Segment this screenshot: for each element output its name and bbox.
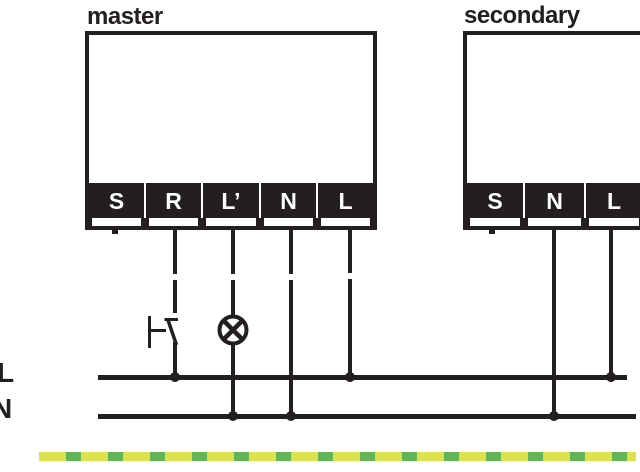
wire-master-l-lower <box>348 279 352 378</box>
master-terminal-bar: S R L’ N L <box>89 183 373 226</box>
terminal-stub-secondary-s <box>489 230 495 234</box>
wire-master-l1-upper <box>231 230 235 274</box>
terminal-slot <box>528 218 581 226</box>
master-terminal-letters: S R L’ N L <box>89 183 373 218</box>
terminal-slot <box>321 218 370 226</box>
bus-label-l: L <box>0 359 14 387</box>
earth-conductor <box>39 452 636 461</box>
master-terminal-r: R <box>146 183 201 218</box>
terminal-slot <box>264 218 313 226</box>
terminal-slot <box>92 218 141 226</box>
bus-label-n: N <box>0 395 12 423</box>
secondary-terminal-letters: S N L <box>467 183 640 218</box>
master-terminal-n: N <box>261 183 316 218</box>
secondary-device: S N L <box>463 31 640 230</box>
terminal-slot <box>470 218 520 226</box>
master-terminal-slots <box>89 218 373 226</box>
master-panel-face <box>89 35 373 183</box>
terminal-slot <box>206 218 256 226</box>
master-terminal-l1: L’ <box>203 183 259 218</box>
junction-dot <box>286 411 296 421</box>
master-device-label: master <box>87 3 163 31</box>
junction-dot <box>228 411 238 421</box>
junction-dot <box>606 372 616 382</box>
secondary-terminal-s: S <box>467 183 523 218</box>
wire-secondary-n <box>552 230 556 417</box>
terminal-slot <box>589 218 639 226</box>
wire-master-l-upper <box>348 230 352 273</box>
wiring-diagram: master secondary S R L’ N L <box>0 0 640 472</box>
master-terminal-s: S <box>89 183 144 218</box>
secondary-terminal-bar: S N L <box>467 183 640 226</box>
wire-master-n-lower <box>289 280 293 417</box>
master-device: S R L’ N L <box>85 31 377 230</box>
lamp-icon <box>213 310 253 350</box>
secondary-terminal-l: L <box>586 183 640 218</box>
secondary-device-label: secondary <box>464 2 580 30</box>
secondary-terminal-n: N <box>525 183 584 218</box>
terminal-stub-master-s <box>112 230 118 234</box>
wire-master-l1-lower <box>231 344 235 417</box>
secondary-panel-face <box>467 35 640 183</box>
junction-dot <box>345 372 355 382</box>
terminal-slot <box>149 218 198 226</box>
wire-master-r-upper <box>173 230 177 274</box>
junction-dot <box>170 372 180 382</box>
push-button-switch-icon <box>140 300 184 356</box>
junction-dot <box>549 411 559 421</box>
secondary-terminal-slots <box>467 218 640 226</box>
wire-master-n-upper <box>289 230 293 274</box>
wire-secondary-l <box>609 230 613 378</box>
master-terminal-l: L <box>318 183 373 218</box>
